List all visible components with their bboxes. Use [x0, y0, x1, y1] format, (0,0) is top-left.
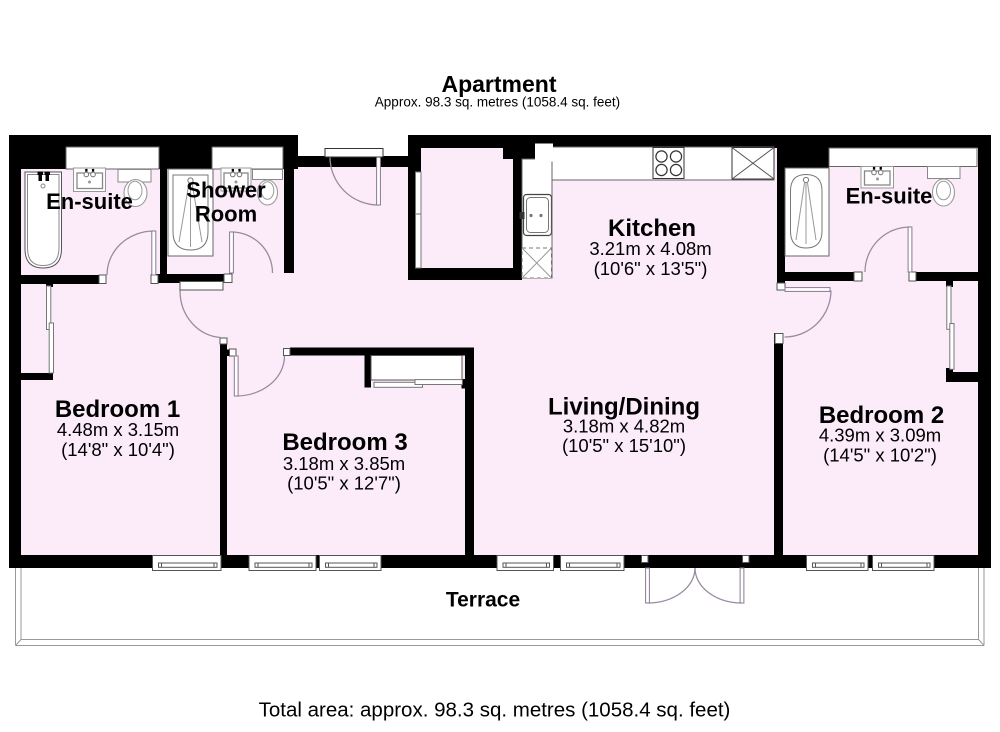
- svg-text:3.18m x 3.85m: 3.18m x 3.85m: [283, 453, 405, 474]
- svg-text:(14'5" x 10'2"): (14'5" x 10'2"): [823, 445, 937, 466]
- svg-text:(10'6" x 13'5"): (10'6" x 13'5"): [594, 258, 708, 279]
- svg-text:En-suite: En-suite: [46, 189, 133, 214]
- svg-text:(14'8" x 10'4"): (14'8" x 10'4"): [61, 439, 175, 460]
- svg-text:3.21m x 4.08m: 3.21m x 4.08m: [589, 238, 711, 259]
- svg-text:Room: Room: [195, 202, 257, 227]
- svg-text:En-suite: En-suite: [846, 184, 933, 209]
- svg-text:Shower: Shower: [186, 178, 266, 203]
- svg-text:4.39m x 3.09m: 4.39m x 3.09m: [819, 425, 941, 446]
- svg-text:Total area: approx. 98.3 sq. m: Total area: approx. 98.3 sq. metres (105…: [259, 699, 731, 722]
- svg-text:(10'5" x 15'10"): (10'5" x 15'10"): [562, 435, 686, 456]
- svg-text:4.48m x 3.15m: 4.48m x 3.15m: [57, 419, 179, 440]
- svg-text:3.18m x 4.82m: 3.18m x 4.82m: [563, 416, 685, 437]
- svg-text:Bedroom 3: Bedroom 3: [282, 429, 407, 456]
- svg-text:(10'5" x 12'7"): (10'5" x 12'7"): [287, 473, 401, 494]
- svg-text:Terrace: Terrace: [446, 589, 520, 612]
- svg-text:Apartment: Apartment: [441, 71, 556, 97]
- svg-text:Approx. 98.3 sq. metres (1058.: Approx. 98.3 sq. metres (1058.4 sq. feet…: [375, 95, 620, 110]
